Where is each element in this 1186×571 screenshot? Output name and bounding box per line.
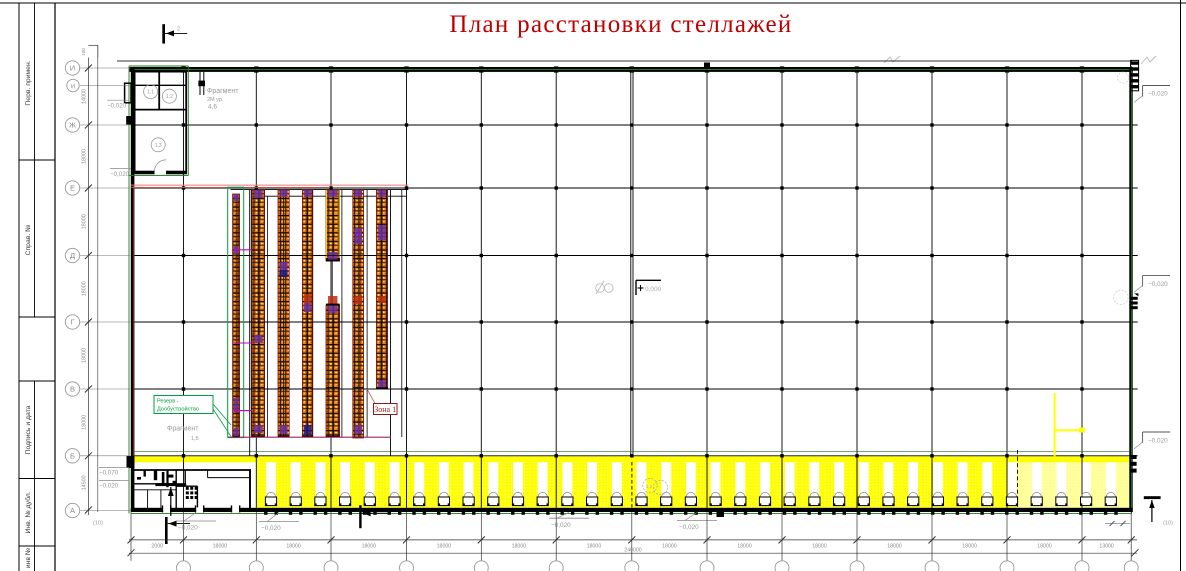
svg-text:Б: Б [70, 451, 75, 460]
svg-text:14000: 14000 [81, 89, 87, 104]
svg-text:2: 2 [177, 27, 180, 33]
svg-text:18000: 18000 [812, 543, 827, 549]
svg-text:2М ур.: 2М ур. [207, 97, 224, 103]
svg-text:(10): (10) [1163, 521, 1173, 527]
svg-text:18000: 18000 [1037, 543, 1052, 549]
svg-text:2000: 2000 [151, 543, 163, 549]
svg-text:Справ. №: Справ. № [25, 225, 32, 256]
svg-text:18000: 18000 [81, 149, 87, 164]
svg-text:Резерв -: Резерв - [157, 399, 179, 405]
svg-text:Е: Е [70, 184, 75, 193]
svg-text:−0,020: −0,020 [1148, 281, 1168, 288]
svg-text:18000: 18000 [81, 415, 87, 430]
svg-text:1.2: 1.2 [166, 94, 173, 100]
svg-text:−0,020: −0,020 [107, 103, 127, 110]
svg-text:13000: 13000 [1099, 543, 1114, 549]
svg-text:Зона 1: Зона 1 [374, 405, 396, 414]
svg-text:1.1: 1.1 [147, 90, 154, 96]
svg-text:100: 100 [81, 48, 86, 56]
svg-text:18000: 18000 [81, 214, 87, 229]
svg-text:240000: 240000 [624, 547, 641, 553]
svg-text:18000: 18000 [81, 348, 87, 363]
svg-text:Перв. примен.: Перв. примен. [25, 60, 32, 105]
svg-text:И: И [70, 64, 75, 73]
svg-text:−0,020: −0,020 [261, 525, 281, 532]
svg-text:−0,020: −0,020 [679, 524, 699, 531]
svg-text:Инв. № дубл.: Инв. № дубл. [24, 491, 32, 533]
svg-text:18000: 18000 [587, 543, 602, 549]
svg-text:Фрагмент: Фрагмент [207, 88, 239, 95]
svg-text:Ж: Ж [69, 121, 76, 130]
svg-text:1.3: 1.3 [155, 143, 162, 149]
svg-text:4,6: 4,6 [208, 104, 217, 111]
svg-text:Дообустройство: Дообустройство [157, 406, 199, 413]
svg-text:В: В [70, 385, 75, 394]
svg-text:Д: Д [70, 251, 75, 260]
svg-text:−0,020: −0,020 [1148, 437, 1168, 444]
svg-text:18000: 18000 [286, 543, 301, 549]
svg-text:18000: 18000 [362, 543, 377, 549]
svg-text:Подпись и дата: Подпись и дата [25, 405, 32, 454]
svg-text:1.2: 1.2 [646, 484, 653, 489]
svg-text:Фрагмент: Фрагмент [167, 426, 199, 433]
svg-text:−0,020: −0,020 [110, 171, 130, 178]
svg-text:18000: 18000 [437, 543, 452, 549]
svg-text:Г: Г [70, 318, 74, 327]
svg-text:План расстановки стеллажей: План расстановки стеллажей [449, 11, 792, 38]
svg-text:−0,020: −0,020 [551, 522, 571, 529]
svg-text:18000: 18000 [962, 543, 977, 549]
svg-text:18000: 18000 [81, 281, 87, 296]
svg-text:0,000: 0,000 [645, 286, 662, 293]
svg-text:(10): (10) [93, 521, 103, 527]
svg-text:18000: 18000 [887, 543, 902, 549]
svg-text:И: И [71, 84, 75, 90]
svg-text:18000: 18000 [512, 543, 527, 549]
svg-text:−0,020: −0,020 [178, 525, 198, 532]
svg-text:А: А [70, 506, 75, 515]
svg-text:−0,070: −0,070 [99, 470, 119, 477]
svg-text:Взам. инв №: Взам. инв № [25, 548, 32, 571]
svg-text:14500: 14500 [81, 475, 87, 490]
svg-text:−0,020: −0,020 [99, 483, 119, 490]
svg-text:1,5: 1,5 [191, 436, 199, 442]
svg-text:18000: 18000 [213, 543, 228, 549]
svg-text:−0,020: −0,020 [1148, 91, 1168, 98]
svg-text:18000: 18000 [737, 543, 752, 549]
svg-text:18000: 18000 [662, 543, 677, 549]
